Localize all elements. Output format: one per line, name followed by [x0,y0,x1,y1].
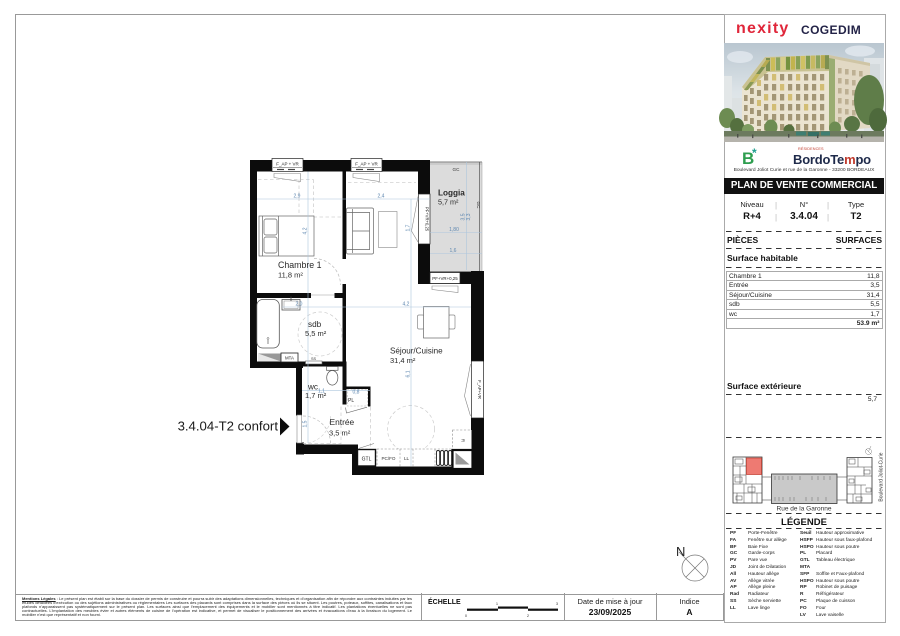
svg-text:31,4 m²: 31,4 m² [390,356,416,365]
svg-text:F_AP + VR: F_AP + VR [276,162,299,167]
svg-text:3,3: 3,3 [466,213,472,220]
svg-text:Chambre 1: Chambre 1 [278,260,322,270]
svg-text:3.4.04-T2 confort: 3.4.04-T2 confort [178,419,279,434]
svg-text:Entrée: Entrée [330,417,355,427]
svg-text:4,2: 4,2 [303,227,309,234]
svg-text:1,7 m²: 1,7 m² [305,391,327,400]
svg-text:2: 2 [527,614,529,618]
svg-text:N: N [676,544,685,559]
svg-text:Séjour/Cuisine: Séjour/Cuisine [390,347,443,356]
svg-text:3,5 m²: 3,5 m² [329,429,351,438]
svg-text:GC: GC [476,202,481,210]
svg-text:1,80: 1,80 [449,227,459,233]
svg-text:2,9: 2,9 [294,194,301,200]
svg-text:0: 0 [465,614,467,618]
svg-text:R: R [461,439,466,442]
svg-text:Rue de la Garonne: Rue de la Garonne [777,506,832,513]
svg-text:PF+VR+0,25: PF+VR+0,25 [425,207,430,232]
svg-text:1: 1 [496,602,498,606]
svg-text:2,4: 2,4 [378,194,385,200]
svg-text:4,2: 4,2 [403,302,410,308]
svg-text:1,6: 1,6 [450,248,457,254]
svg-text:PC/FO: PC/FO [381,456,395,461]
svg-text:LL: LL [404,456,410,461]
svg-text:F_AP + VR: F_AP + VR [355,162,378,167]
svg-text:2,0: 2,0 [296,302,303,308]
svg-text:MTA: MTA [285,356,294,361]
svg-text:Loggia: Loggia [438,189,465,198]
svg-text:F_AP+VR: F_AP+VR [477,380,482,399]
svg-text:5,7 m²: 5,7 m² [438,198,459,207]
svg-text:sdb: sdb [308,320,322,329]
svg-text:5,5 m²: 5,5 m² [305,329,327,338]
svg-text:1,5: 1,5 [303,420,309,427]
svg-text:11,8 m²: 11,8 m² [278,271,303,280]
svg-text:6,1: 6,1 [406,370,412,377]
svg-text:GC: GC [453,167,461,172]
svg-text:SS: SS [311,357,317,361]
svg-text:0,8: 0,8 [353,389,360,395]
svg-text:PF+VR+0,25: PF+VR+0,25 [432,276,458,281]
svg-text:1,7: 1,7 [406,224,412,231]
svg-text:3: 3 [556,602,558,606]
svg-text:Boulevard Joliot-Curie: Boulevard Joliot-Curie [879,452,885,501]
svg-text:GTL: GTL [362,457,372,463]
svg-text:PL: PL [348,398,354,404]
